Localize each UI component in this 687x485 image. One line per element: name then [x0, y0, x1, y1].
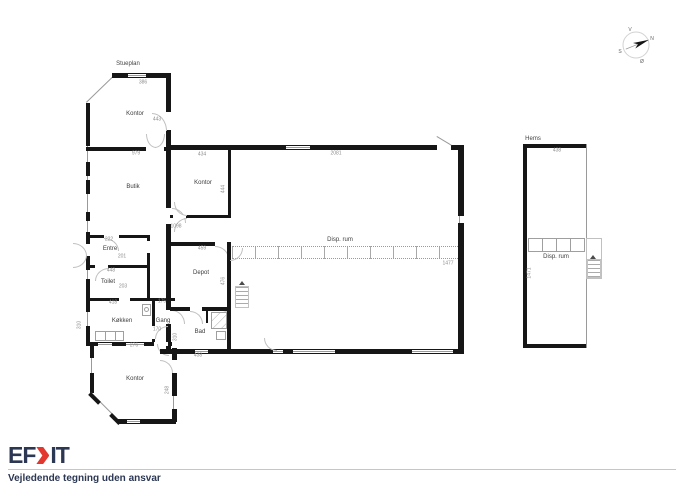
sink-fixture	[216, 331, 226, 340]
floor-plan: Stueplan Hems	[0, 0, 687, 485]
dimension-label: 444	[222, 185, 227, 193]
door-arc	[73, 255, 87, 268]
window-line	[86, 194, 90, 212]
dimension-label: 203	[119, 285, 127, 290]
dimension-label: 310	[174, 333, 179, 341]
window-line	[458, 216, 464, 223]
window-line	[86, 312, 90, 326]
dimension-label: 276	[130, 344, 138, 349]
compass-needle-icon	[625, 37, 650, 52]
dimension-label: 459	[198, 247, 206, 252]
gate-line	[293, 350, 335, 353]
dimension-label: 310	[78, 321, 83, 329]
stair-arrow-icon	[239, 281, 245, 285]
dimension-label: 386	[139, 81, 147, 86]
closet-box	[528, 238, 543, 252]
kitchen-counter	[95, 331, 124, 341]
dimension-label: 2081	[330, 152, 341, 157]
dimension-label: 248	[166, 386, 171, 394]
loft-overhang-band	[232, 246, 458, 259]
stair-arrow-icon	[590, 255, 596, 259]
room-label-kontor-top: Kontor	[126, 111, 144, 117]
window-line	[98, 343, 112, 346]
logo-suffix: IT	[50, 444, 68, 467]
dimension-label: 1477	[442, 262, 453, 267]
room-label-toilet: Toilet	[101, 279, 115, 285]
door-arc	[190, 311, 203, 324]
closet-box	[542, 238, 557, 252]
window-line	[128, 74, 146, 77]
wall	[227, 307, 231, 354]
door-gap	[437, 145, 451, 150]
room-label-depot: Depot	[193, 270, 209, 276]
wall	[228, 145, 231, 217]
window-line	[86, 221, 90, 232]
compass-north-label: N	[650, 36, 654, 42]
staircase	[235, 286, 249, 308]
compass-south-label: S	[618, 49, 622, 55]
wall	[206, 311, 208, 323]
dimension-label: 222	[105, 238, 113, 243]
window-line	[86, 270, 90, 279]
compass-east-label: Ø	[640, 59, 644, 65]
wall	[88, 392, 101, 405]
wall	[523, 144, 527, 348]
floor-title: Stueplan	[116, 61, 140, 67]
door-gap	[147, 241, 150, 253]
room-label-entre: Entre	[103, 246, 117, 252]
closet-box	[556, 238, 571, 252]
dimension-label: 438	[194, 354, 202, 359]
chamfer-line	[86, 75, 115, 103]
dimension-label: 476	[222, 277, 227, 285]
room-label-butik: Butik	[126, 184, 139, 190]
room-label-koekken: Køkken	[112, 318, 132, 324]
logo-chevron-icon	[36, 447, 49, 464]
dimension-label: 438	[553, 149, 561, 154]
logo-prefix: EF	[8, 444, 35, 467]
compass: N Ø S V	[612, 21, 660, 69]
window-line	[172, 396, 177, 409]
staircase	[587, 259, 601, 278]
wc-fixture	[144, 307, 149, 312]
dimension-label: 979	[132, 152, 140, 157]
gate-line	[286, 146, 310, 149]
room-label-kontor-mid: Kontor	[194, 180, 212, 186]
room-label-disp-rum-hall: Disp. rum	[327, 237, 353, 243]
compass-west-label: V	[628, 27, 632, 33]
dimension-label: 201	[118, 255, 126, 260]
dimension-label: 418	[109, 301, 117, 306]
room-label-bad: Bad	[195, 329, 206, 335]
dimension-label: 170	[153, 328, 161, 333]
door-gap	[119, 298, 130, 301]
door-arc	[230, 248, 243, 261]
dimension-label: 175	[158, 300, 166, 305]
window-line	[127, 420, 140, 423]
room-label-disp-rum-hems: Disp. rum	[543, 254, 569, 260]
window-line	[90, 358, 94, 373]
disclaimer-text: Vejledende tegning uden ansvar	[8, 473, 161, 484]
dimension-label: 443	[153, 118, 161, 123]
dimension-label: 434	[198, 153, 206, 158]
dimension-label: 1471	[528, 267, 533, 278]
room-label-gang: Gang	[156, 318, 171, 324]
room-label-kontor-bottom: Kontor	[126, 376, 144, 382]
dimension-label: 448	[107, 269, 115, 274]
window-line	[86, 176, 90, 180]
wall	[166, 145, 464, 150]
loft-title: Hems	[525, 136, 541, 142]
logo: EF IT	[8, 444, 69, 467]
wall	[523, 344, 587, 348]
shower-fixture	[211, 312, 227, 329]
door-arc	[155, 134, 165, 148]
gate-line	[412, 350, 453, 353]
door-arc	[172, 310, 185, 324]
dimension-label: 1098	[170, 225, 181, 230]
closet-box	[570, 238, 585, 252]
footer-divider	[8, 469, 676, 470]
wall	[458, 145, 464, 354]
